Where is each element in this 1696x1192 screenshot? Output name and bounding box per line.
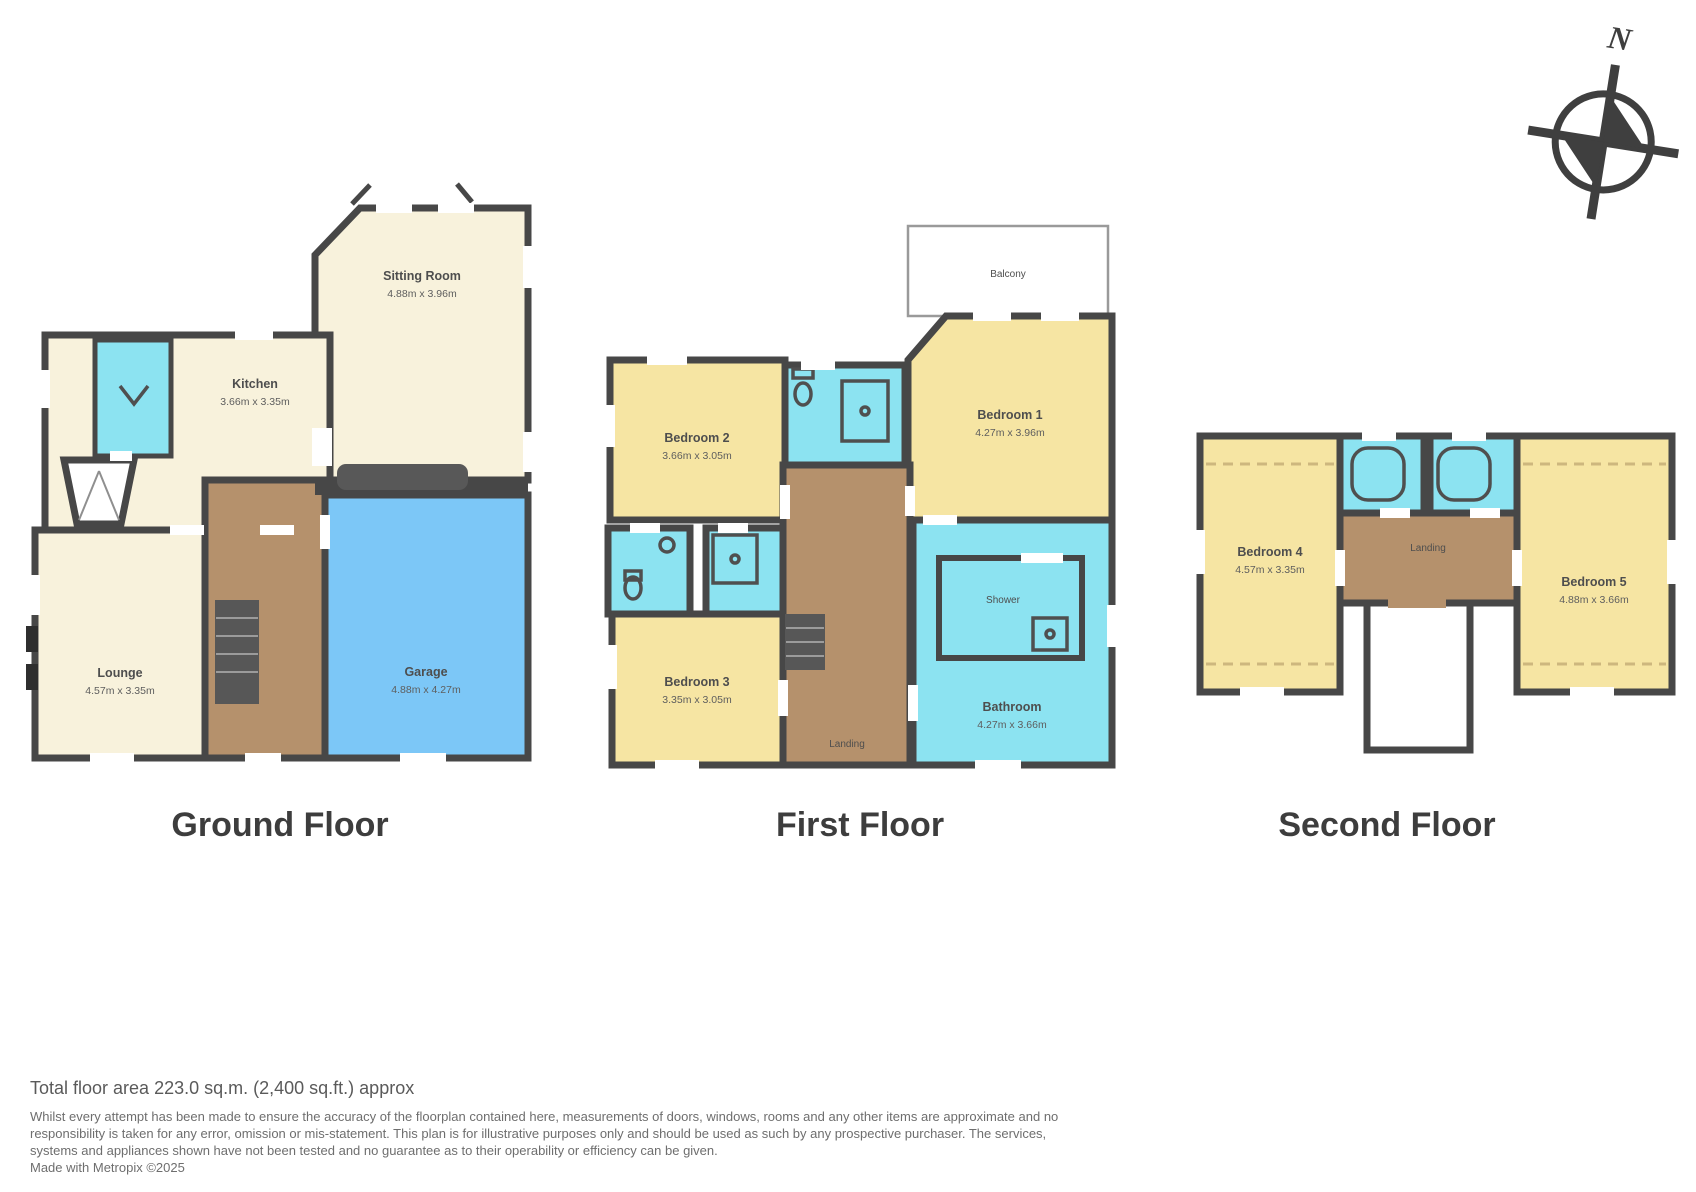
roof-ticks [352, 184, 472, 204]
dims-bathroom: 4.27m x 3.66m [977, 719, 1047, 731]
dims-garage: 4.88m x 4.27m [391, 684, 461, 696]
entrance-porch [64, 460, 134, 524]
room-garage [325, 495, 528, 758]
footer-block: Whilst every attempt has been made to en… [30, 1108, 1070, 1176]
label-bedroom3: Bedroom 3 [664, 675, 729, 689]
disclaimer-text: Whilst every attempt has been made to en… [30, 1108, 1070, 1159]
room-wc-first [706, 528, 783, 614]
label-bedroom4: Bedroom 4 [1237, 545, 1302, 559]
compass-icon: N [1512, 2, 1696, 242]
staircase [215, 600, 259, 704]
label-sitting-room: Sitting Room [383, 269, 461, 283]
dims-kitchen: 3.66m x 3.35m [220, 396, 290, 408]
garage-door [337, 464, 468, 490]
room-lounge [35, 530, 205, 758]
staircase [785, 614, 825, 670]
dims-bedroom3: 3.35m x 3.05m [662, 694, 732, 706]
label-balcony: Balcony [990, 269, 1026, 280]
compass-north-label: N [1604, 18, 1635, 58]
metropix-credit: Made with Metropix ©2025 [30, 1159, 1070, 1176]
label-bedroom2: Bedroom 2 [664, 431, 729, 445]
dims-bedroom5: 4.88m x 3.66m [1559, 594, 1629, 606]
label-kitchen: Kitchen [232, 377, 278, 391]
stairwell [1367, 598, 1470, 750]
label-bedroom5: Bedroom 5 [1561, 575, 1626, 589]
label-bathroom: Bathroom [982, 700, 1041, 714]
dims-bedroom2: 3.66m x 3.05m [662, 450, 732, 462]
room-bedroom5 [1517, 436, 1672, 692]
dims-bedroom1: 4.27m x 3.96m [975, 427, 1045, 439]
label-landing-second: Landing [1410, 543, 1446, 554]
room-shower-room [608, 528, 690, 614]
total-floor-area: Total floor area 223.0 sq.m. (2,400 sq.f… [30, 1078, 414, 1099]
dims-sitting-room: 4.88m x 3.96m [387, 288, 457, 300]
room-landing-second [1340, 513, 1517, 603]
room-bedroom3 [612, 614, 783, 765]
dims-lounge: 4.57m x 3.35m [85, 685, 155, 697]
first-floor-plan: Balcony Bedroom 1 4.27m x 3.96m Bedroom … [555, 190, 1125, 790]
label-garage: Garage [404, 665, 447, 679]
ground-floor-title: Ground Floor [171, 806, 388, 845]
label-bedroom1: Bedroom 1 [977, 408, 1042, 422]
room-wc [95, 340, 171, 456]
ground-floor-plan: Sitting Room 4.88m x 3.96m Kitchen 3.66m… [20, 180, 560, 780]
label-lounge: Lounge [97, 666, 142, 680]
label-landing-first: Landing [829, 739, 865, 750]
dims-bedroom4: 4.57m x 3.35m [1235, 564, 1305, 576]
second-floor-plan: Bedroom 4 4.57m x 3.35m Bedroom 5 4.88m … [1140, 390, 1696, 810]
label-shower: Shower [986, 595, 1021, 606]
first-floor-title: First Floor [776, 806, 944, 845]
second-floor-title: Second Floor [1278, 806, 1495, 845]
room-sitting [315, 208, 528, 480]
floorplan-page: Sitting Room 4.88m x 3.96m Kitchen 3.66m… [0, 0, 1696, 1192]
